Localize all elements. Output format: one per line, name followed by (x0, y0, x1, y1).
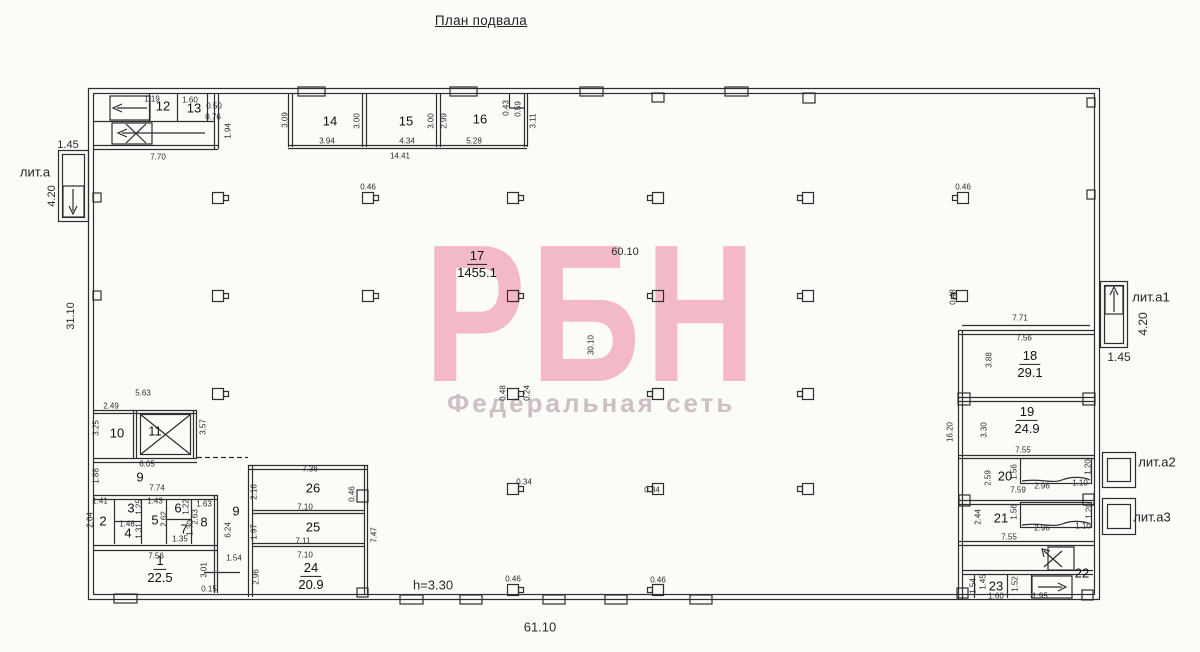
dim-label: 5.28 (466, 137, 482, 146)
dim-label: 1.20 (1084, 459, 1093, 475)
dim-label: 1.94 (224, 123, 233, 139)
room-number-20: 20 (998, 469, 1012, 484)
dim-label: 1.22 (182, 499, 191, 515)
dim-label: 7.55 (1015, 446, 1031, 455)
room-number-8: 8 (200, 515, 207, 530)
dim-label: 2.96 (1034, 524, 1050, 533)
dim-label: 3.94 (319, 137, 335, 146)
dim-label: 1.45 (979, 574, 988, 590)
dim-label: 2.64 (86, 512, 95, 528)
dim-label: 1.52 (1011, 576, 1020, 592)
room-number-9: 9 (232, 504, 239, 519)
dim-label: 1.54 (226, 554, 242, 563)
dim-label: 2.16 (250, 484, 259, 500)
dim-label: 1.45 (57, 139, 78, 151)
dim-label: 7.11 (296, 537, 311, 546)
room-area-label-18: 1829.1 (1017, 349, 1042, 381)
dim-label: 1.25 (135, 499, 144, 515)
dim-label: 16.20 (946, 422, 955, 442)
litera-label: лит.а2 (1138, 455, 1175, 470)
room-number-13: 13 (187, 101, 201, 116)
room-number-7: 7 (180, 522, 187, 537)
dim-label: 3.00 (353, 113, 362, 129)
room-number-23: 23 (989, 579, 1003, 594)
dim-label: 7.10 (297, 551, 313, 560)
dim-label: 4.20 (46, 185, 58, 206)
dim-label: 0.50 (206, 102, 222, 111)
dim-label: 1.20 (1085, 503, 1094, 519)
room-number-16: 16 (473, 112, 487, 127)
dim-label: 1.88 (92, 468, 101, 484)
room-number-12: 12 (156, 99, 170, 114)
dim-label: 1.95 (1032, 592, 1048, 601)
dim-label: 6.24 (224, 522, 233, 538)
dim-label: 0.15 (201, 585, 217, 594)
dim-label: 30.10 (587, 335, 596, 355)
dim-label: 7.56 (1016, 334, 1032, 343)
litera-label: лит.а (20, 165, 50, 180)
dim-label: 2.96 (1034, 482, 1050, 491)
dim-label: 3.88 (985, 352, 994, 368)
litera-label: лит.а3 (1133, 510, 1170, 525)
dim-label: 0.46 (505, 575, 521, 584)
dim-label: 0.48 (499, 385, 508, 401)
dim-label: 31.10 (65, 302, 77, 330)
room-number-3: 3 (127, 501, 134, 516)
dim-label: 3.00 (427, 113, 436, 129)
room-number-2: 2 (99, 514, 106, 529)
dim-label: 60.10 (611, 246, 639, 258)
plan-title: План подвала (435, 13, 527, 28)
dim-label: 1.63 (196, 500, 212, 509)
dim-label: 7.70 (150, 153, 166, 162)
dim-label: 1.10 (1072, 479, 1088, 488)
room-area-label-17: 171455.1 (457, 249, 497, 281)
dim-label: 3.57 (199, 419, 208, 435)
dim-label: 1.41 (92, 497, 108, 506)
dim-label: 2.44 (974, 509, 983, 525)
room-number-9: 9 (136, 470, 143, 485)
dim-label: 1.97 (250, 524, 259, 540)
dim-label: 6.05 (139, 460, 155, 469)
floor-plan-page: РБН Федеральная сеть (0, 0, 1200, 652)
dim-label: 5.63 (135, 389, 151, 398)
dim-label: 61.10 (524, 620, 557, 635)
room-number-15: 15 (399, 114, 413, 129)
dim-label: 0.43 (502, 100, 511, 116)
dim-label: 0.46 (650, 576, 666, 585)
dim-label: 4.20 (1136, 312, 1150, 335)
dim-label: 2.96 (252, 569, 261, 585)
dim-label: 4.34 (399, 137, 415, 146)
dim-label: 3.01 (200, 562, 209, 578)
dim-label: h=3.30 (413, 578, 453, 593)
room-number-4: 4 (124, 526, 131, 541)
dim-label: 7.71 (1012, 314, 1028, 323)
dim-label: 14.41 (390, 152, 410, 161)
dim-label: 1.45 (1107, 350, 1130, 364)
dim-label: 7.74 (149, 484, 165, 493)
room-area-label-1: 122.5 (147, 554, 172, 586)
dim-label: 1.56 (1010, 504, 1019, 520)
room-number-5: 5 (151, 513, 158, 528)
dim-label: 2.63 (191, 509, 200, 525)
dim-label: 2.49 (103, 402, 119, 411)
room-number-14: 14 (323, 114, 337, 129)
room-number-10: 10 (110, 426, 124, 441)
room-number-26: 26 (306, 481, 320, 496)
dim-label: 0.48 (949, 289, 958, 305)
dim-label: 7.10 (297, 503, 313, 512)
dim-label: 2.99 (440, 113, 449, 129)
dim-label: 7.47 (370, 527, 379, 543)
dim-label: 1.10 (1075, 522, 1091, 531)
room-number-11: 11 (148, 424, 162, 439)
dim-label: 0.76 (205, 113, 221, 122)
dim-label: 2.59 (984, 470, 993, 486)
litera-label: лит.а1 (1132, 290, 1169, 305)
dim-label: 7.59 (1010, 486, 1026, 495)
dim-label: 3.09 (281, 112, 290, 128)
dim-label: 0.46 (955, 183, 971, 192)
dim-label: 1.31 (135, 523, 144, 539)
dim-label: 3.11 (529, 114, 538, 129)
room-number-22: 22 (1075, 566, 1089, 581)
dim-label: 0.34 (516, 478, 532, 487)
room-number-21: 21 (994, 511, 1008, 526)
dim-label: 1.54 (969, 578, 978, 594)
dim-label: 0.46 (360, 183, 376, 192)
dim-label: 0.59 (514, 101, 523, 117)
room-number-25: 25 (306, 520, 320, 535)
room-area-label-24: 2420.9 (298, 561, 323, 593)
dim-label: 0.24 (523, 385, 532, 401)
dim-label: 3.25 (92, 420, 101, 436)
dim-label: 3.30 (980, 422, 989, 438)
dim-label: 7.36 (302, 465, 318, 474)
dim-label: 1.43 (147, 497, 163, 506)
room-area-label-19: 1924.9 (1014, 405, 1039, 437)
labels-layer: 1.454.2031.101.191.600.500.761.947.703.0… (0, 0, 1200, 652)
dim-label: 0.46 (348, 486, 357, 502)
dim-label: 0.34 (644, 486, 660, 495)
dim-label: 2.62 (160, 511, 169, 527)
dim-label: 7.55 (1001, 533, 1017, 542)
room-number-6: 6 (174, 501, 181, 516)
